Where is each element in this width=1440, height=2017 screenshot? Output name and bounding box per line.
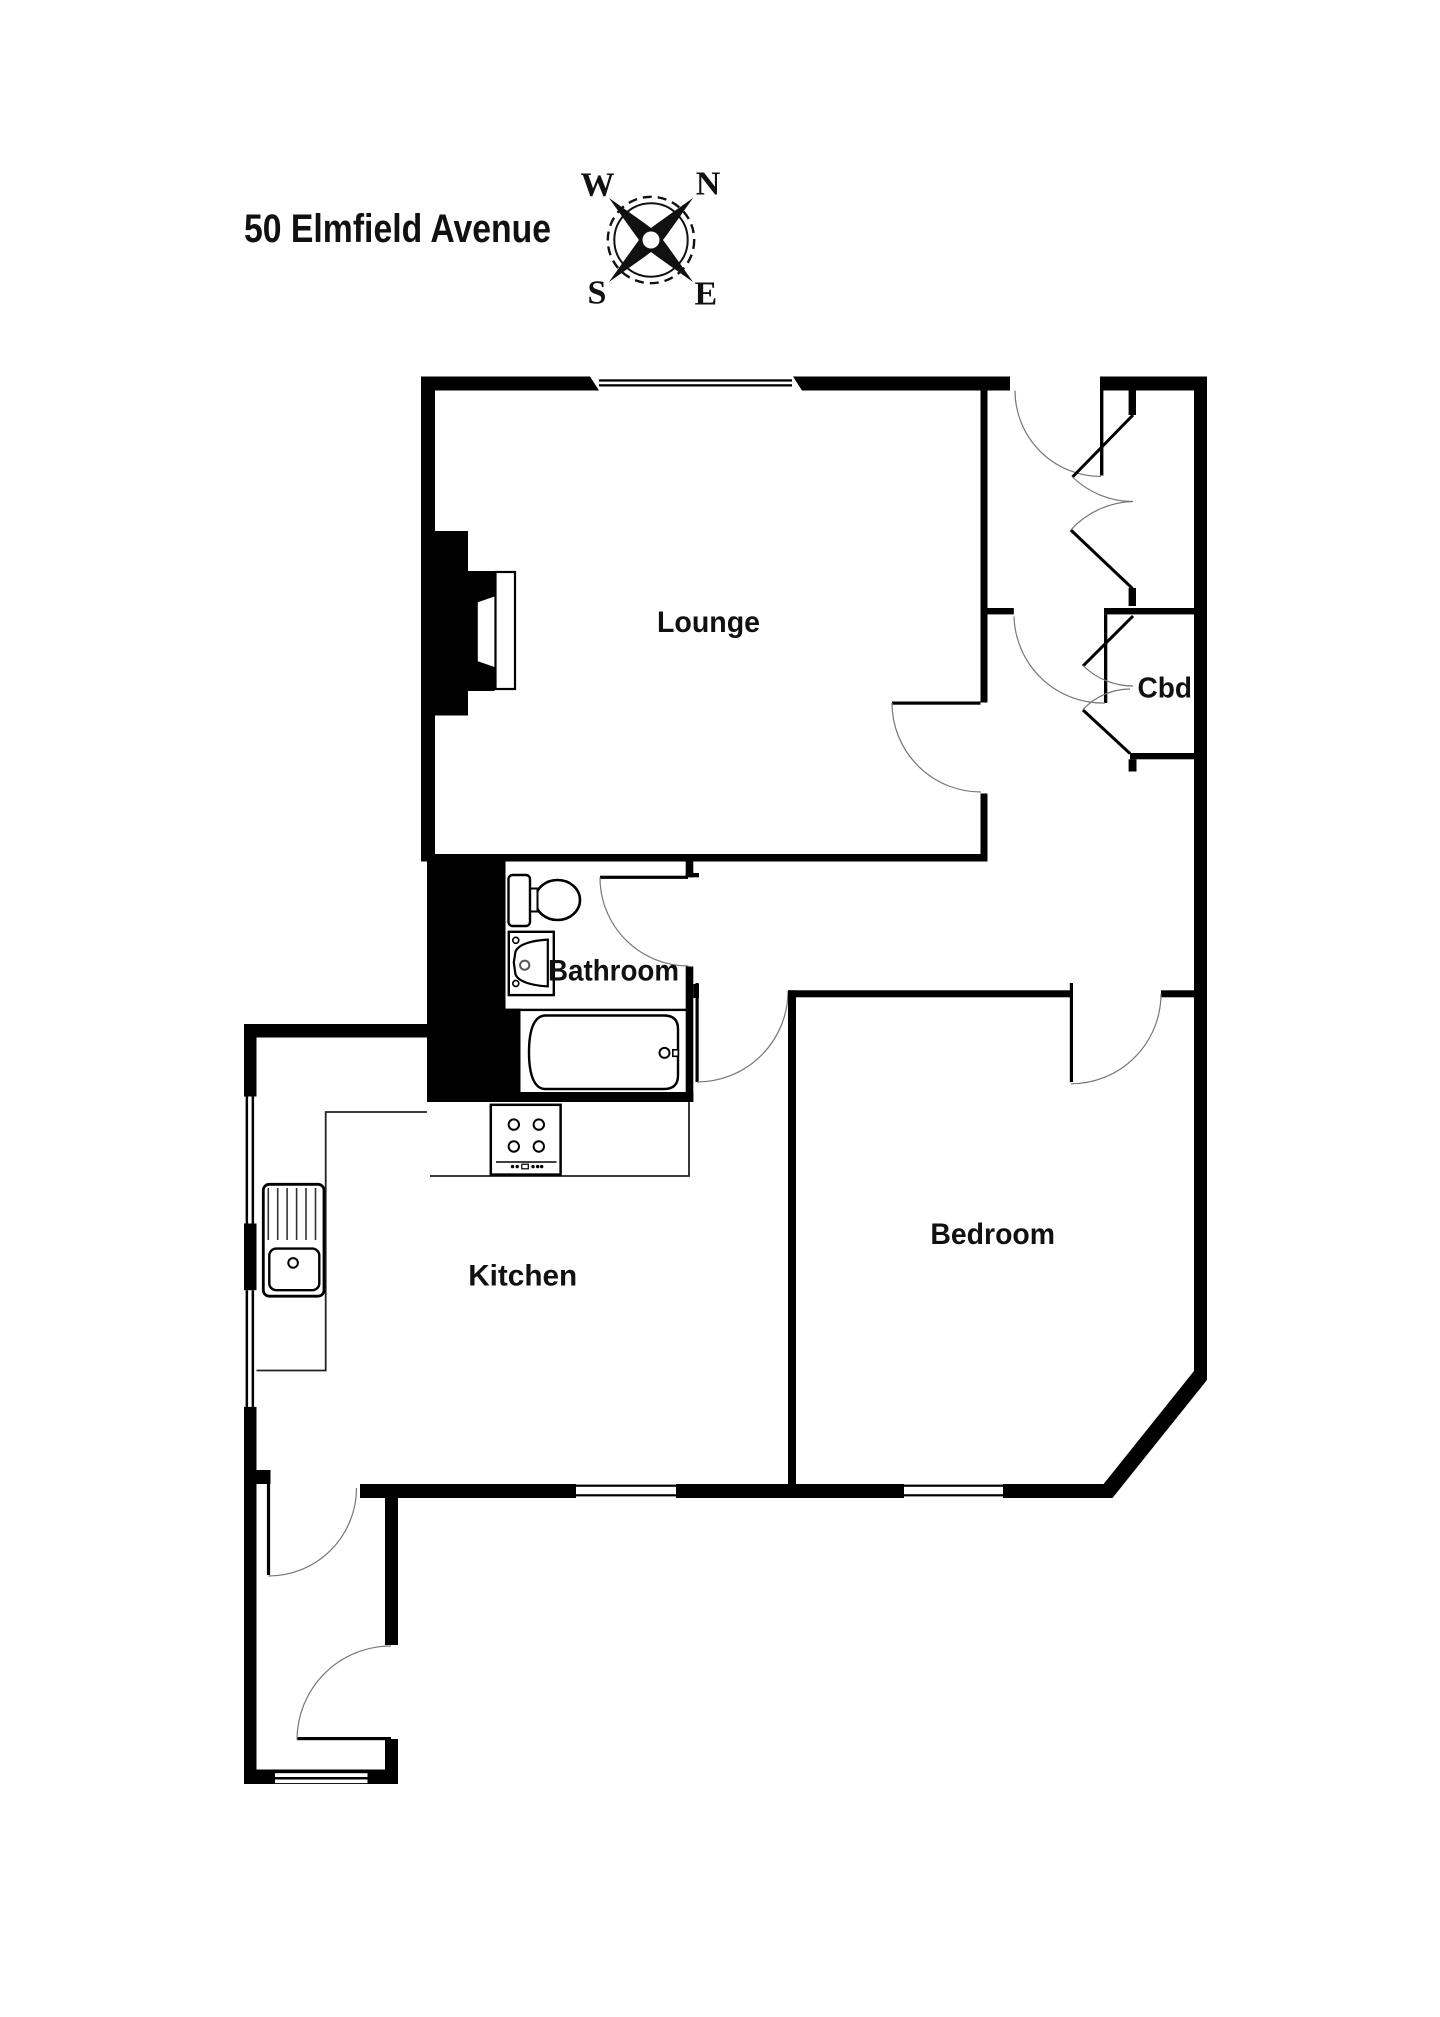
- svg-text:S: S: [588, 275, 607, 312]
- svg-text:Kitchen: Kitchen: [468, 1260, 577, 1293]
- svg-text:Lounge: Lounge: [657, 606, 760, 639]
- svg-text:Bathroom: Bathroom: [548, 955, 679, 988]
- svg-text:N: N: [696, 166, 721, 203]
- svg-text:50 Elmfield Avenue: 50 Elmfield Avenue: [244, 207, 551, 251]
- svg-text:Bedroom: Bedroom: [930, 1218, 1055, 1251]
- svg-text:W: W: [581, 167, 615, 204]
- svg-text:E: E: [694, 276, 717, 313]
- svg-text:Cbd: Cbd: [1138, 673, 1193, 705]
